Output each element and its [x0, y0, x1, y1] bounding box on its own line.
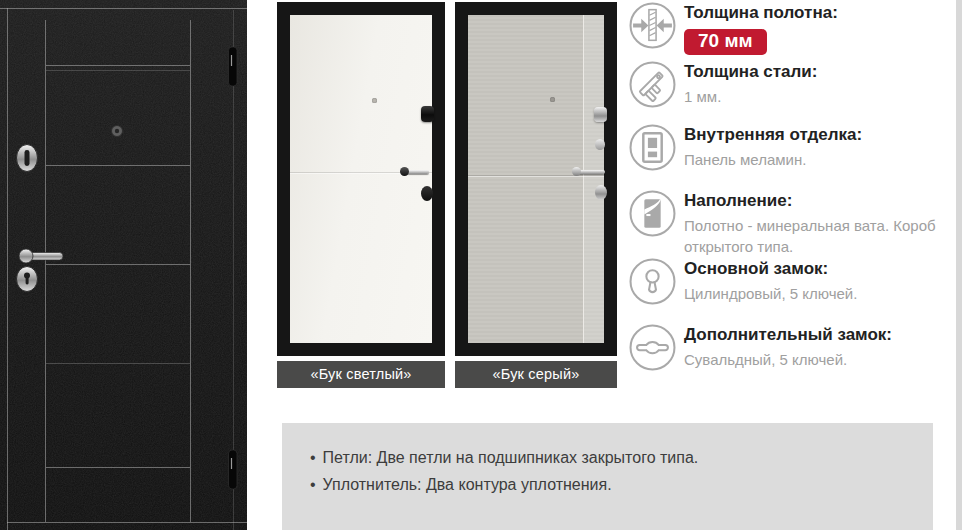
spec-value: Панель меламин.	[684, 149, 946, 170]
spec-panel-thickness: Толщина полотна: 70 мм	[629, 2, 946, 55]
lock-cylinder	[421, 186, 433, 201]
door-panel-gray	[468, 15, 604, 343]
spec-value: 1 мм.	[684, 86, 946, 107]
variant-label-gray-beech[interactable]: «Бук серый»	[455, 361, 617, 388]
spec-title: Толщина стали:	[684, 61, 946, 83]
interior-finish-icon	[629, 124, 676, 171]
spec-value: Полотно - минеральная вата. Короб открыт…	[684, 215, 946, 257]
bullet: •	[310, 471, 316, 498]
lock-knob	[421, 106, 434, 122]
spec-value: Сувальдный, 5 ключей.	[684, 349, 946, 370]
filling-icon	[629, 190, 676, 237]
panel-thickness-icon	[629, 2, 676, 49]
main-lock-icon	[629, 258, 676, 305]
spec-title: Дополнительный замок:	[684, 324, 946, 346]
extra-lock-icon	[629, 324, 676, 371]
hinge-bottom	[229, 450, 238, 489]
panel-stripe	[583, 15, 584, 343]
feature-hinges: • Петли: Две петли на подшипниках закрыт…	[310, 444, 913, 471]
spec-value: Цилиндровый, 5 ключей.	[684, 283, 946, 304]
handle	[574, 170, 605, 174]
spec-main-lock: Основной замок: Цилиндровый, 5 ключей.	[629, 258, 946, 305]
panel-seam	[468, 175, 604, 176]
spec-title: Толщина полотна:	[684, 2, 946, 24]
feature-seal: • Уплотнитель: Два контура уплотнения.	[310, 471, 913, 498]
spec-steel-thickness: Толщина стали: 1 мм.	[629, 61, 946, 108]
product-page: «Бук светлый» «Бук серый» Толщина полотн…	[0, 0, 962, 530]
bullet: •	[310, 444, 316, 471]
upper-lock	[17, 145, 38, 172]
feature-text: Уплотнитель: Два контура уплотнения.	[323, 471, 612, 498]
variant-thumb-light-beech[interactable]	[277, 2, 445, 356]
variant-label-light-beech[interactable]: «Бук светлый»	[277, 361, 445, 388]
spec-filling: Наполнение: Полотно - минеральная вата. …	[629, 190, 946, 257]
peephole	[550, 97, 555, 102]
door-panel-light	[290, 15, 432, 343]
spec-title: Основной замок:	[684, 258, 946, 280]
thickness-badge: 70 мм	[684, 29, 767, 55]
peephole	[372, 98, 377, 103]
page-edge-strip	[956, 0, 962, 530]
steel-thickness-icon	[629, 61, 676, 108]
variant-thumb-gray-beech[interactable]	[455, 2, 617, 356]
hinge-top	[229, 47, 238, 86]
spec-interior-finish: Внутренняя отделка: Панель меламин.	[629, 124, 946, 171]
main-door-artwork	[0, 0, 247, 530]
spec-extra-lock: Дополнительный замок: Сувальдный, 5 ключ…	[629, 324, 946, 371]
lock-knob	[594, 107, 607, 122]
spec-list: Толщина полотна: 70 мм Толщина стали: 1 …	[629, 0, 949, 420]
handle	[402, 170, 429, 174]
panel-edge-strip	[583, 15, 604, 343]
feature-text: Петли: Две петли на подшипниках закрытог…	[323, 444, 699, 471]
main-door-photo[interactable]	[0, 0, 247, 530]
spec-title: Внутренняя отделка:	[684, 124, 946, 146]
night-latch	[595, 139, 605, 150]
lower-lock	[17, 267, 38, 292]
features-box: • Петли: Две петли на подшипниках закрыт…	[282, 423, 933, 530]
peephole	[112, 126, 123, 137]
lock-cylinder	[595, 185, 607, 200]
spec-title: Наполнение:	[684, 190, 946, 212]
